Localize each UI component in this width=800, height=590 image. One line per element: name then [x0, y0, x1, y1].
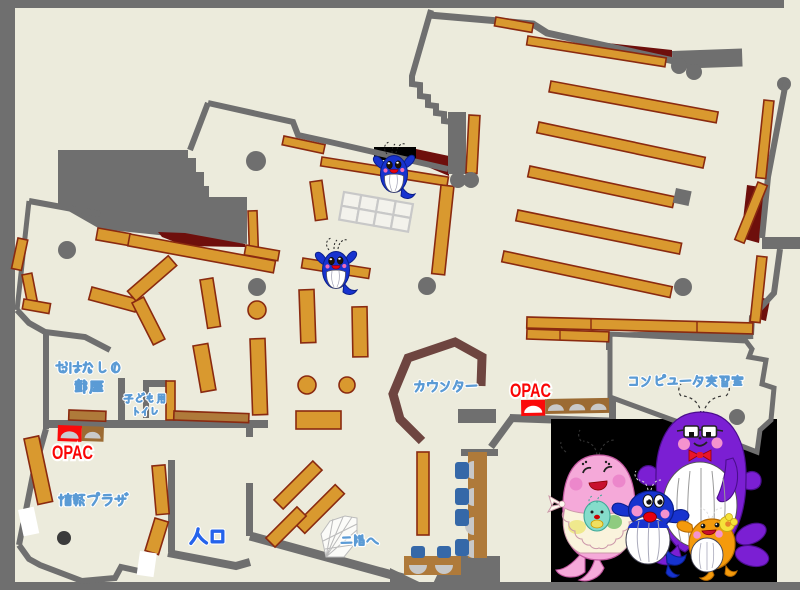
svg-text:OPAC: OPAC — [52, 443, 93, 464]
svg-text:OPAC: OPAC — [510, 381, 551, 402]
